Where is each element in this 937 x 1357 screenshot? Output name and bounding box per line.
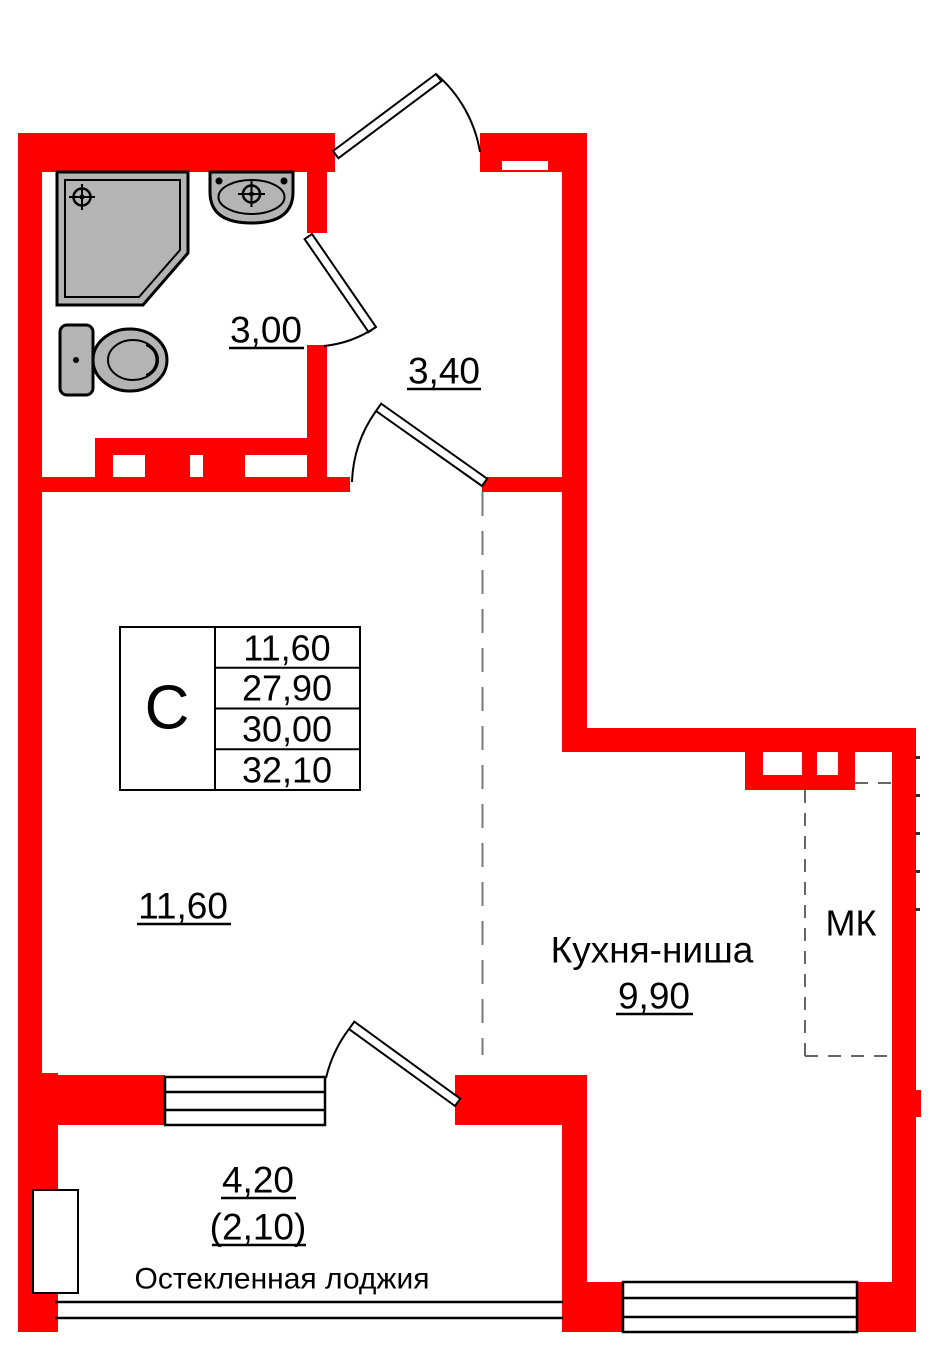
floor-plan-page: С 11,60 27,90 30,00 32,10 3,00 3,40 11,6… [0,0,937,1357]
duct-vent-slot [763,752,802,775]
facade-tick [915,832,920,835]
facade-tick [915,870,920,873]
duct-vent-slot [817,752,838,775]
hall-door-leaf [376,404,487,486]
entrance-niche [502,161,548,170]
wall-balcony-pier-left [18,1075,165,1125]
table-value-full: 32,10 [242,750,332,791]
duct-vent-slot [190,455,203,477]
loggia-name-label: Остекленная лоджия [135,1263,430,1296]
facade-tick [915,908,920,911]
wall-hall-bottom-left [18,477,350,492]
toilet-button [73,357,79,363]
duct-vent-slot [245,455,307,477]
living-area-label: 11,60 [138,886,228,927]
facade-tick [915,794,920,797]
wall-hall-bottom-right [482,477,587,492]
table-value-living: 11,60 [243,628,330,669]
loggia-area-reduced-label: (2,10) [210,1207,307,1248]
wall-top-left [18,133,335,172]
table-value-half-loggia: 30,00 [242,709,332,750]
wall-window-pier-left [562,1282,623,1332]
loggia-cabinet [33,1190,78,1293]
wall-right-stub [915,1090,921,1117]
unit-info-table: С 11,60 27,90 30,00 32,10 [120,627,360,791]
duct-label: МК [826,903,877,944]
duct-vent-slot [113,455,145,477]
bathroom-fixtures [57,172,293,395]
wall-left-outer [18,133,42,1077]
wall-right-outer [892,728,916,1332]
sink-tap-dot [281,178,288,185]
hall-door-swing [352,411,376,482]
sink-tap-dot [216,178,223,185]
kitchen-name-label: Кухня-ниша [551,930,754,971]
wall-window-pier-right [857,1282,916,1332]
balcony-door-swing [326,1029,349,1078]
wall-hall-right [562,172,587,752]
wall-bathroom-right-upper [307,172,327,233]
entrance-door-leaf [333,74,441,158]
table-value-no-loggia: 27,90 [242,668,332,709]
kitchen-area-label: 9,90 [618,976,690,1017]
balcony-door-leaf [349,1022,460,1106]
bathroom-area-label: 3,00 [230,310,302,351]
loggia-area-full-label: 4,20 [222,1160,294,1201]
living-room-window [165,1077,325,1125]
kitchen-window [623,1282,857,1332]
floor-plan-drawing: С 11,60 27,90 30,00 32,10 3,00 3,40 11,6… [0,0,937,1357]
doors [305,74,488,1106]
hall-area-label: 3,40 [408,351,480,392]
facade-tick [915,756,920,759]
bathroom-door-leaf [305,234,376,332]
unit-type-label: С [145,674,190,743]
entrance-door-swing [436,74,480,152]
wall-kitchen-top [562,728,916,752]
